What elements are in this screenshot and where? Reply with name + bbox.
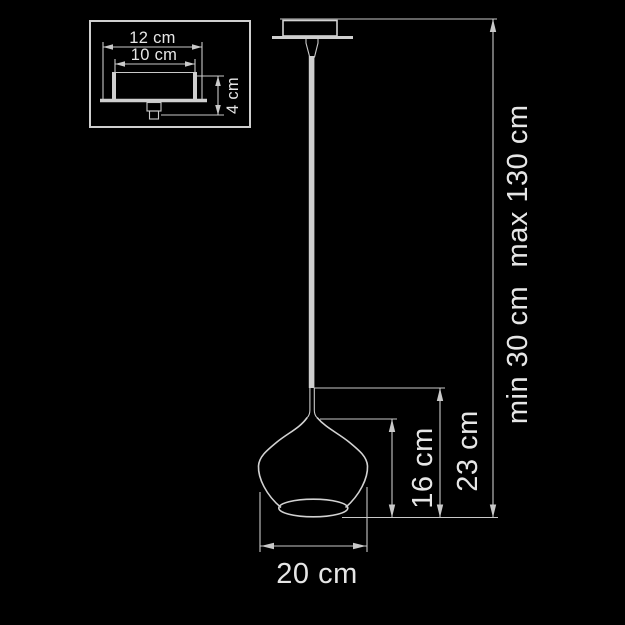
arrow-up-icon [389,419,395,432]
arrow-down-icon [437,505,443,518]
dim-23cm: 23 cm [437,388,484,518]
main-dimensions: 16 cm 23 cm min 30 cm max 130 cm 20 cm [260,19,534,590]
arrow-left-icon [115,61,125,67]
cord-grip-upper [147,103,161,112]
arrow-right-icon [192,44,202,50]
dim-16cm: 16 cm [389,419,439,518]
arrow-up-icon [490,19,496,32]
canopy-cross-section [100,72,207,119]
dim-10cm-label: 10 cm [131,46,177,64]
arrow-down-icon [389,505,395,518]
pendant-lamp-diagram: 12 cm 10 cm 4 cm [0,0,625,625]
dim-16cm-label: 16 cm [407,427,439,508]
dim-20cm-label: 20 cm [276,558,357,590]
cord-grip-lower [150,111,159,119]
dim-suspension-min-label: min 30 cm [502,286,534,424]
shade-bottom-rim [279,499,348,517]
dimension-drawing: 12 cm 10 cm 4 cm [0,0,625,625]
dim-4cm-label: 4 cm [224,77,242,114]
arrow-right-icon [185,61,195,67]
cord-strain-relief [306,39,318,58]
suspension-cord [309,56,315,388]
shade-profile-right [317,418,368,508]
dim-10cm: 10 cm [115,46,195,72]
canopy-body [283,21,337,37]
arrow-down-icon [215,105,221,115]
dim-23cm-label: 23 cm [452,410,484,491]
arrow-up-icon [215,76,221,86]
arrow-left-icon [261,543,274,549]
arrow-up-icon [437,388,443,401]
dim-suspension-max-label: max 130 cm [502,105,534,268]
inset-detail-view: 12 cm 10 cm 4 cm [90,21,250,127]
arrow-down-icon [490,505,496,518]
socket-tube-left [307,388,310,418]
socket-tube-right [314,388,317,418]
dim-suspension: min 30 cm max 130 cm [490,19,534,518]
dim-12cm-label: 12 cm [129,29,175,47]
glass-shade [258,418,367,517]
arrow-right-icon [353,543,366,549]
arrow-left-icon [103,44,113,50]
shade-profile-left [258,418,307,508]
